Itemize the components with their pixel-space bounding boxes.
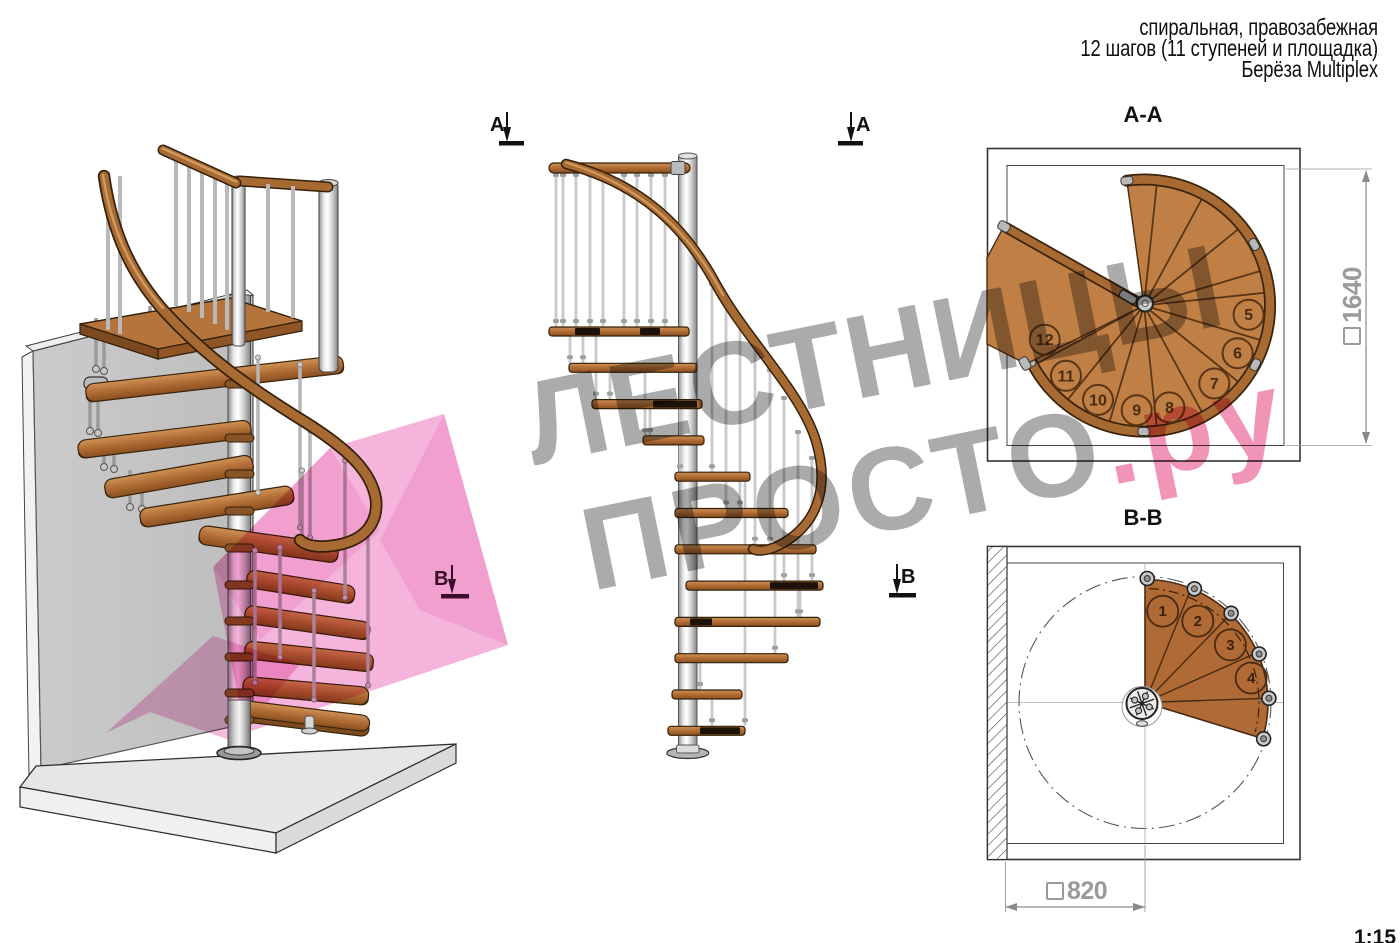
svg-text:A-A: A-A — [1123, 102, 1162, 127]
svg-text:1: 1 — [1159, 603, 1167, 620]
svg-text:4: 4 — [1247, 670, 1256, 687]
svg-text:B: B — [434, 568, 448, 590]
svg-text:3: 3 — [1226, 637, 1234, 654]
svg-text:1:15: 1:15 — [1354, 926, 1396, 943]
svg-text:B-B: B-B — [1123, 505, 1162, 530]
svg-text:B: B — [901, 566, 915, 588]
svg-text:5: 5 — [1244, 307, 1253, 324]
svg-text:820: 820 — [1067, 877, 1107, 905]
svg-text:1640: 1640 — [1337, 267, 1367, 323]
svg-text:A: A — [490, 114, 504, 136]
svg-text:A: A — [856, 114, 870, 136]
svg-text:2: 2 — [1194, 613, 1202, 630]
